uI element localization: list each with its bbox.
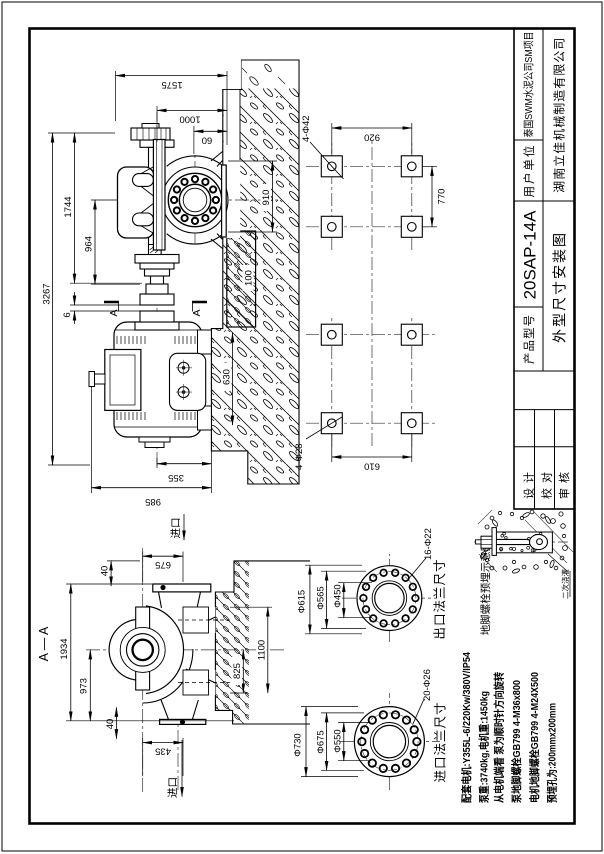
svg-text:进口法兰尺寸: 进口法兰尺寸 (434, 701, 448, 782)
svg-text:100: 100 (244, 270, 255, 286)
svg-text:920: 920 (364, 132, 380, 143)
svg-text:Φ675: Φ675 (315, 730, 326, 753)
svg-text:675: 675 (155, 559, 171, 570)
svg-text:1100: 1100 (256, 640, 267, 660)
svg-text:外型尺寸安装图: 外型尺寸安装图 (552, 231, 568, 343)
svg-text:A: A (108, 309, 120, 316)
svg-text:校对: 校对 (540, 467, 554, 499)
svg-text:Φ565: Φ565 (315, 586, 326, 609)
svg-text:二次浇灌: 二次浇灌 (560, 569, 570, 599)
svg-text:Φ615: Φ615 (296, 590, 307, 613)
svg-text:泰国SWM水泥公司SM项目: 泰国SWM水泥公司SM项目 (522, 32, 535, 138)
svg-text:A: A (191, 309, 203, 316)
svg-text:配套电机:Y355L-6/220Kw/380V/IP54: 配套电机:Y355L-6/220Kw/380V/IP54 (460, 652, 473, 803)
svg-text:973: 973 (79, 678, 90, 694)
svg-text:435: 435 (155, 746, 171, 757)
svg-text:825: 825 (232, 663, 243, 679)
svg-text:630: 630 (222, 369, 233, 385)
svg-text:1000: 1000 (179, 114, 200, 125)
svg-text:20-Φ26: 20-Φ26 (422, 669, 433, 701)
svg-text:Φ730: Φ730 (293, 733, 304, 756)
svg-text:预埋孔为:200mmx200mm: 预埋孔为:200mmx200mm (546, 703, 559, 803)
svg-text:40: 40 (105, 719, 116, 730)
svg-text:16-Φ22: 16-Φ22 (423, 528, 434, 560)
svg-text:进口: 进口 (170, 518, 182, 539)
svg-text:964: 964 (84, 236, 95, 252)
svg-text:1575: 1575 (161, 79, 182, 90)
svg-text:20SAP-14A: 20SAP-14A (521, 210, 540, 299)
svg-text:910: 910 (261, 190, 272, 206)
svg-text:审核: 审核 (557, 467, 571, 499)
svg-text:985: 985 (145, 496, 161, 507)
svg-text:60: 60 (202, 135, 213, 146)
svg-text:770: 770 (437, 189, 448, 205)
svg-text:产品型号: 产品型号 (522, 314, 536, 364)
svg-text:进口: 进口 (167, 777, 179, 798)
svg-text:泵重:3740kg,电机重:1450kg: 泵重:3740kg,电机重:1450kg (478, 691, 491, 803)
svg-text:从电机端看 泵为顺时针方向旋转: 从电机端看 泵为顺时针方向旋转 (493, 672, 506, 803)
svg-text:出口法兰尺寸: 出口法兰尺寸 (433, 558, 447, 639)
svg-text:设计: 设计 (523, 467, 536, 499)
svg-text:1744: 1744 (63, 196, 74, 217)
svg-text:4-Φ42: 4-Φ42 (301, 115, 312, 142)
svg-text:1934: 1934 (59, 638, 70, 659)
svg-text:3267: 3267 (42, 283, 53, 304)
svg-text:用户单位: 用户单位 (522, 144, 536, 198)
svg-text:40: 40 (100, 566, 111, 577)
svg-text:湖南立佳机械制造有限公司: 湖南立佳机械制造有限公司 (552, 37, 567, 193)
svg-text:Φ450: Φ450 (333, 584, 344, 607)
svg-text:A — A: A — A (37, 626, 51, 661)
svg-text:电机地脚螺栓GB799 4-M24X500: 电机地脚螺栓GB799 4-M24X500 (528, 672, 541, 803)
svg-text:Φ550: Φ550 (333, 729, 344, 752)
svg-text:6: 6 (62, 312, 73, 317)
svg-text:610: 610 (364, 461, 380, 472)
svg-text:355: 355 (168, 472, 184, 483)
svg-text:泵地脚螺栓GB799 4-M36x800: 泵地脚螺栓GB799 4-M36x800 (510, 680, 523, 803)
